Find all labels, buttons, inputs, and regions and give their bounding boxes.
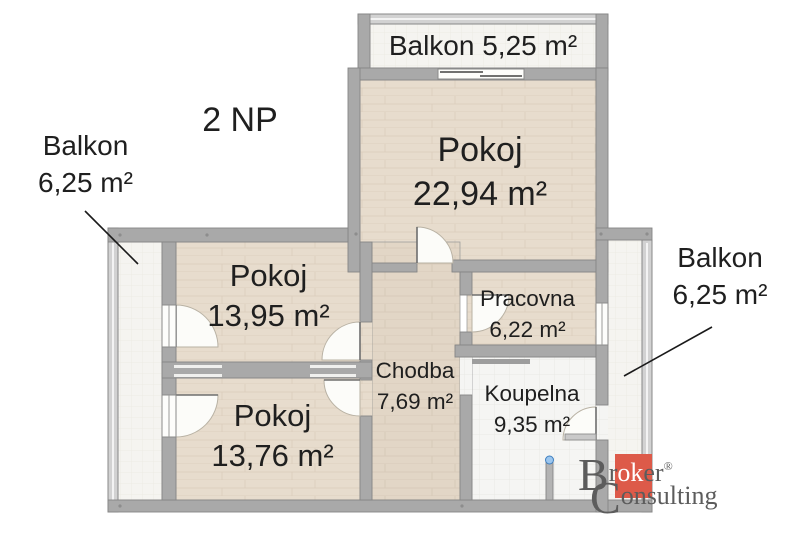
balcony-right-name: Balkon (650, 240, 790, 277)
room-name: Pokoj (176, 256, 361, 296)
room-area: 13,76 m² (180, 436, 365, 476)
balcony-right-area: 6,25 m² (650, 277, 790, 314)
wall-pracovna-south (455, 345, 596, 357)
balcony-top-label: Balkon 5,25 m² (370, 28, 596, 65)
wall-pokoj-large-west (348, 68, 360, 272)
room-name: Chodba (360, 355, 470, 386)
balcony-right-label: Balkon 6,25 m² (650, 240, 790, 314)
logo-line2: Consulting (590, 481, 717, 511)
balcony-left-label: Balkon 6,25 m² (18, 128, 153, 202)
room-name: Pracovna (455, 283, 600, 314)
room-area: 9,35 m² (462, 409, 602, 440)
koupelna-door-leaf (472, 359, 530, 364)
floor-plan-page: 2 NP Balkon 6,25 m² Balkon 5,25 m² Balko… (0, 0, 800, 533)
room-label-pracovna: Pracovna 6,22 m² (455, 283, 600, 345)
wall-pokoj-large-east (596, 68, 608, 240)
room-area: 7,69 m² (360, 386, 470, 417)
balcony-left-area: 6,25 m² (18, 165, 153, 202)
room-label-pokoj-large: Pokoj 22,94 m² (380, 128, 580, 216)
wall-south (108, 500, 652, 512)
room-area: 13,95 m² (176, 296, 361, 336)
shower-head-dot (546, 456, 554, 464)
wall-pracovna-north (452, 260, 608, 272)
logo-initial-c: C (590, 472, 621, 523)
room-area: 6,22 m² (455, 314, 600, 345)
sliding-door-top-balcony (438, 69, 524, 79)
broker-consulting-logo: Broker® Consulting (578, 448, 793, 528)
floor-title: 2 NP (175, 100, 305, 140)
shower-partition (546, 459, 553, 500)
logo-line2-rest: onsulting (621, 481, 718, 510)
room-name: Pokoj (380, 128, 580, 172)
balcony-left-floor (118, 242, 162, 500)
room-area: 22,94 m² (380, 172, 580, 216)
room-name: Koupelna (462, 378, 602, 409)
room-label-pokoj-lower-left: Pokoj 13,76 m² (180, 396, 365, 477)
logo-registered-mark: ® (664, 459, 673, 473)
room-name: Pokoj (180, 396, 365, 436)
wall-lower-north (108, 228, 348, 242)
room-label-pokoj-upper-left: Pokoj 13,95 m² (176, 256, 361, 337)
balcony-left-name: Balkon (18, 128, 153, 165)
room-label-chodba: Chodba 7,69 m² (360, 355, 470, 417)
wall-right-north (596, 228, 652, 240)
room-label-koupelna: Koupelna 9,35 m² (462, 378, 602, 440)
